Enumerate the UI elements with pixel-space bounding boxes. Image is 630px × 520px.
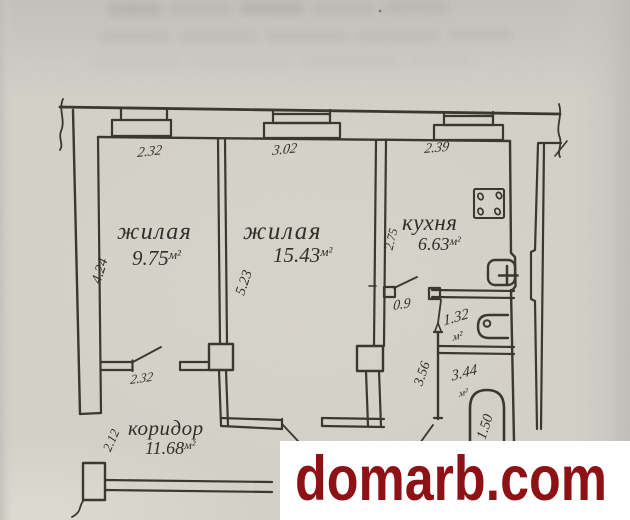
svg-text:3.02: 3.02 — [270, 140, 298, 159]
svg-text:2.39: 2.39 — [423, 139, 450, 157]
svg-text:жилая: жилая — [243, 218, 322, 245]
svg-text:0.9: 0.9 — [393, 295, 411, 314]
svg-text:жилая: жилая — [117, 219, 192, 245]
svg-text:domarb.com: domarb.com — [295, 444, 607, 514]
svg-text:2.32: 2.32 — [136, 142, 163, 161]
svg-text:кухня: кухня — [402, 210, 457, 235]
svg-text:коридор: коридор — [128, 416, 204, 440]
